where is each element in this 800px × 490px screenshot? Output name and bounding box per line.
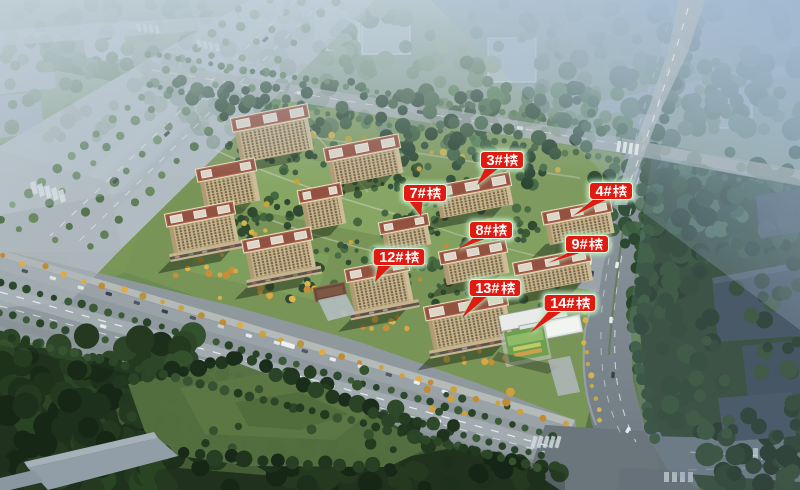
svg-text:3#: 3#	[487, 153, 503, 169]
svg-text:14#: 14#	[550, 296, 574, 312]
svg-text:4#: 4#	[596, 184, 612, 200]
svg-text:12#: 12#	[379, 250, 403, 266]
svg-text:13#: 13#	[475, 281, 499, 297]
svg-text:8#: 8#	[476, 223, 492, 239]
svg-text:7#: 7#	[410, 186, 426, 202]
svg-text:9#: 9#	[572, 237, 588, 253]
